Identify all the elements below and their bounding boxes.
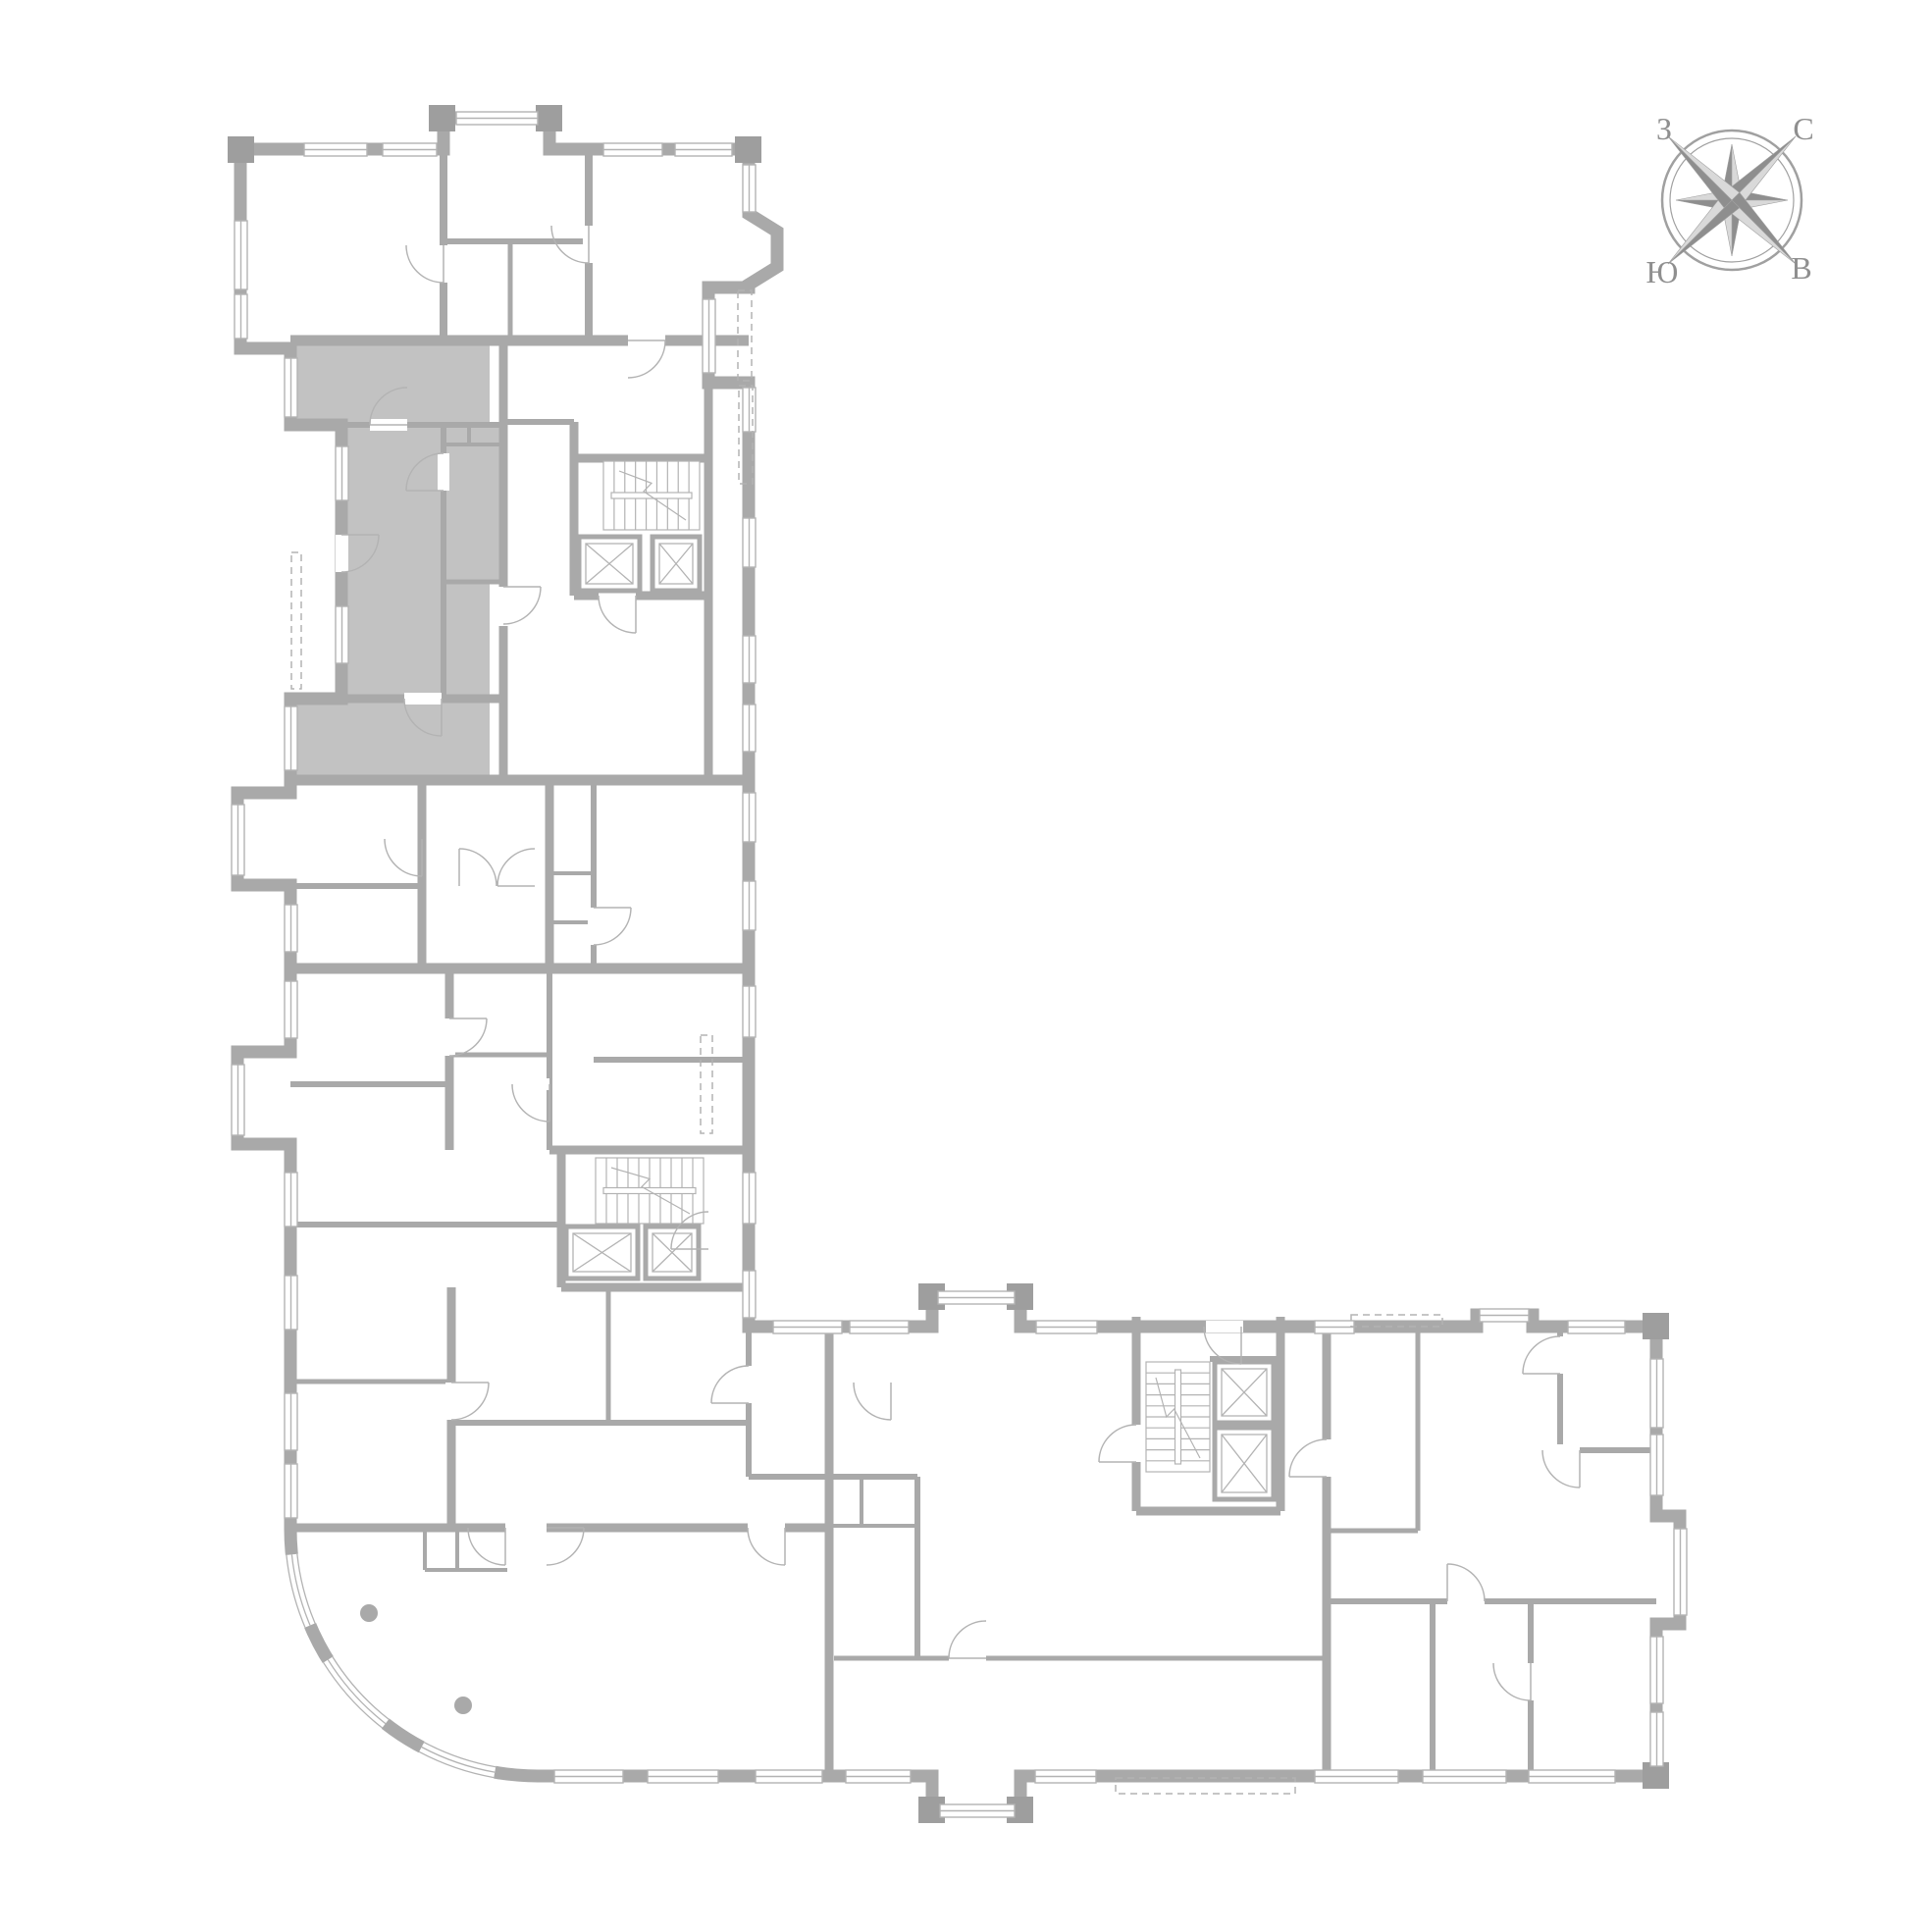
- highlighted-room: [294, 701, 490, 782]
- staircase: [1146, 1362, 1210, 1472]
- staircase: [596, 1158, 704, 1224]
- highlighted-room: [339, 422, 507, 701]
- compass-label-east: В: [1791, 250, 1811, 286]
- elevator-shaft: [646, 1227, 699, 1279]
- compass-label-west: З: [1656, 111, 1672, 146]
- elevator-shaft: [1215, 1428, 1274, 1499]
- compass-label-south: Ю: [1646, 254, 1679, 289]
- staircase: [603, 461, 700, 530]
- elevator-shaft: [653, 537, 700, 591]
- floor-plan-page: С В Ю З: [0, 0, 1932, 1932]
- elevator-shaft: [566, 1227, 638, 1279]
- compass-label-north: С: [1793, 111, 1813, 146]
- highlighted-room: [294, 343, 490, 422]
- elevator-shaft: [579, 537, 640, 591]
- compass-star-icon: [1662, 131, 1801, 270]
- floor-plan: С В Ю З: [0, 0, 1932, 1932]
- elevator-shaft: [1215, 1362, 1274, 1423]
